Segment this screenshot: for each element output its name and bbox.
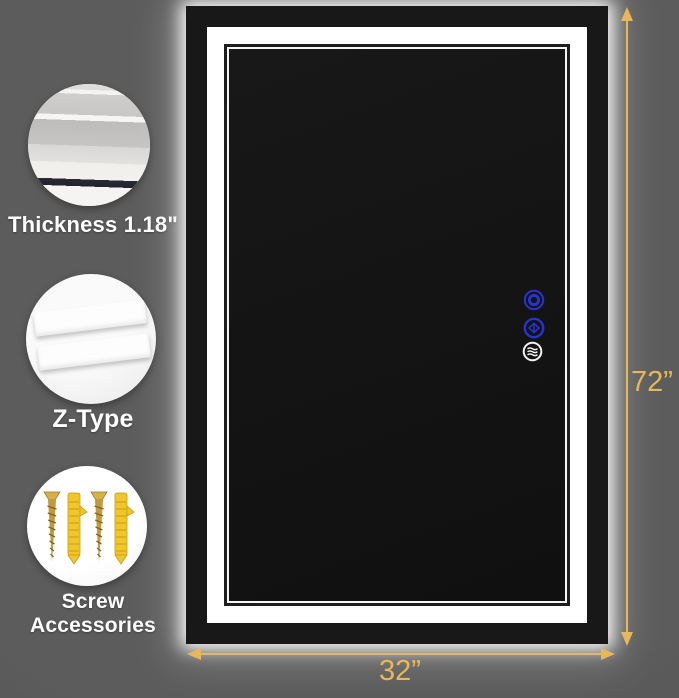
ztype-detail-photo [26, 274, 156, 404]
power-button[interactable] [523, 289, 545, 311]
defog-button[interactable] [522, 341, 543, 362]
led-mirror [186, 6, 608, 644]
z-bracket [37, 333, 151, 370]
power-icon [523, 289, 545, 311]
height-dimension-label: 72” [631, 366, 673, 399]
height-dimension-line [626, 20, 628, 634]
screws-detail-photo [27, 466, 147, 586]
arrow-left-icon [187, 648, 201, 660]
arrow-up-icon [621, 7, 633, 21]
thickness-detail-photo [28, 84, 150, 206]
screws-and-anchors-icon [27, 466, 147, 586]
z-bracket [33, 299, 147, 336]
defog-icon [522, 341, 543, 362]
ztype-label: Z-Type [0, 405, 186, 434]
color-temp-icon [523, 317, 545, 339]
mirror-cross-section [28, 84, 150, 206]
arrow-down-icon [621, 632, 633, 646]
mirror-glass [229, 49, 565, 601]
arrow-right-icon [601, 648, 615, 660]
product-image: Thickness 1.18" Z-Type [0, 0, 679, 698]
width-dimension-label: 32” [355, 655, 445, 688]
color-temp-button[interactable] [523, 317, 545, 339]
thickness-label: Thickness 1.18" [0, 212, 186, 238]
screws-label: Screw Accessories [0, 590, 186, 638]
